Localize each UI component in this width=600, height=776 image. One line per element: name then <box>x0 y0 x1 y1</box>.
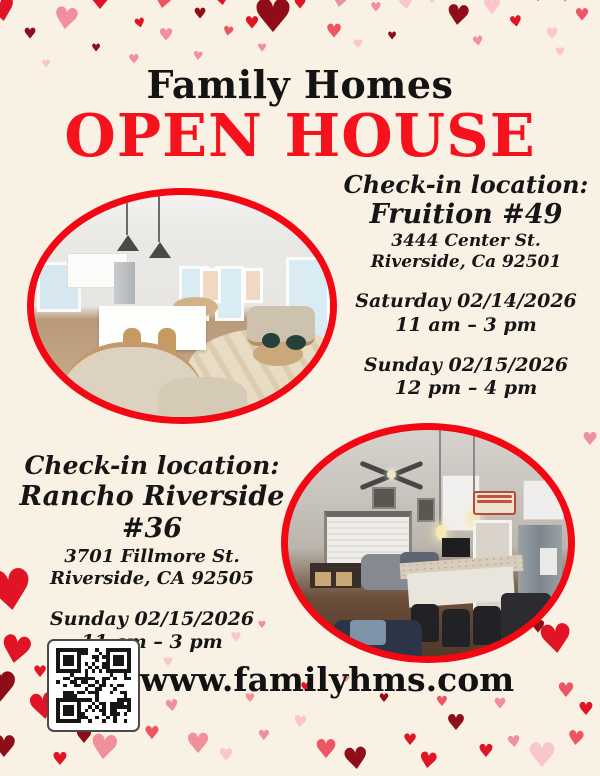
heart-icon: ♥ <box>33 664 47 680</box>
session-time: 12 pm – 4 pm <box>333 377 599 400</box>
checkin-heading: Check-in location: <box>333 171 599 199</box>
wall-art <box>243 268 264 303</box>
heart-icon: ♥ <box>293 0 306 12</box>
heart-icon: ♥ <box>91 43 101 54</box>
heart-icon: ♥ <box>471 35 484 49</box>
heart-icon: ♥ <box>557 680 575 700</box>
heart-icon: ♥ <box>574 8 589 25</box>
pendant-lamp <box>149 242 171 258</box>
pendant-stem <box>126 195 128 235</box>
session-saturday: Saturday 02/14/2026 11 am – 3 pm <box>333 290 599 336</box>
throw-pillow <box>350 620 386 645</box>
heart-icon: ♥ <box>325 23 342 42</box>
wall-photo <box>417 498 435 522</box>
heart-icon: ♥ <box>52 751 68 769</box>
pendant-stem <box>158 195 160 242</box>
heart-icon: ♥ <box>292 713 308 731</box>
heart-icon: ♥ <box>566 727 586 749</box>
heart-icon: ♥ <box>151 0 174 15</box>
location-name: Fruition #49 <box>333 199 599 231</box>
heart-icon: ♥ <box>353 38 364 50</box>
checkin-block-fruition: Check-in location: Fruition #49 3444 Cen… <box>333 171 599 400</box>
fridge-note <box>540 548 557 575</box>
bar-stool <box>473 606 501 644</box>
heart-icon: ♥ <box>578 701 594 719</box>
checkin-heading: Check-in location: <box>6 452 298 481</box>
heart-icon: ♥ <box>193 7 206 22</box>
trash-bins <box>501 593 551 643</box>
session-date: Sunday 02/15/2026 <box>333 354 599 377</box>
decor-vase <box>262 333 280 349</box>
address-line2: Riverside, CA 92505 <box>6 568 298 591</box>
heart-icon: ♥ <box>478 743 494 761</box>
heart-icon: ♥ <box>84 0 116 16</box>
open-house-flyer: ♥♥♥♥♥♥♥♥♥♥♥♥♥♥♥♥♥♥♥♥♥♥♥♥♥♥♥♥♥♥♥♥♥♥♥♥♥♥♥♥… <box>0 0 600 776</box>
address-line1: 3701 Fillmore St. <box>6 546 298 569</box>
basket <box>315 572 332 586</box>
address-line2: Riverside, Ca 92501 <box>333 252 599 273</box>
heart-icon: ♥ <box>213 0 231 10</box>
heart-icon: ♥ <box>397 0 415 14</box>
bar-stool <box>442 609 470 647</box>
heart-icon: ♥ <box>506 733 522 751</box>
photo-lived-in-home <box>281 423 575 663</box>
heart-icon: ♥ <box>0 0 20 29</box>
heart-icon: ♥ <box>482 0 502 19</box>
heart-icon: ♥ <box>446 713 466 735</box>
session-date: Saturday 02/14/2026 <box>333 290 599 313</box>
checkin-block-rancho: Check-in location: Rancho Riverside #36 … <box>6 452 298 654</box>
heart-icon: ♥ <box>133 16 147 31</box>
heart-icon: ♥ <box>164 697 180 715</box>
snack-bar-sign <box>473 491 516 515</box>
session-time: 11 am – 3 pm <box>333 314 599 337</box>
heart-icon: ♥ <box>387 31 397 42</box>
microwave <box>442 538 470 556</box>
address-line1: 3444 Center St. <box>333 231 599 252</box>
wall-photo <box>372 487 396 509</box>
heart-icon: ♥ <box>582 431 598 449</box>
qr-code-grid <box>56 648 131 723</box>
kitchen-cabinets <box>523 480 564 520</box>
website-url: www.familyhms.com <box>140 660 485 699</box>
heart-icon: ♥ <box>0 733 17 763</box>
pendant-stem <box>439 430 441 525</box>
heart-icon: ♥ <box>444 1 472 31</box>
heart-icon: ♥ <box>192 49 204 62</box>
heart-icon: ♥ <box>221 24 235 39</box>
heart-icon: ♥ <box>144 725 160 743</box>
pendant-lamp <box>117 235 139 251</box>
heart-icon: ♥ <box>418 0 447 8</box>
photo-staged-home <box>27 188 337 424</box>
location-name: Rancho Riverside #36 <box>6 481 298 546</box>
heart-icon: ♥ <box>51 3 82 36</box>
refrigerator <box>114 262 135 304</box>
heart-icon: ♥ <box>87 729 121 766</box>
heart-icon: ♥ <box>555 46 566 58</box>
heart-icon: ♥ <box>185 730 210 758</box>
session-sunday: Sunday 02/15/2026 12 pm – 4 pm <box>333 354 599 400</box>
heart-icon: ♥ <box>403 732 417 748</box>
heart-icon: ♥ <box>258 729 271 743</box>
heart-icon: ♥ <box>314 737 337 763</box>
heart-icon: ♥ <box>527 739 557 773</box>
heart-icon: ♥ <box>508 13 524 30</box>
sofa-cushion <box>158 377 247 421</box>
heart-icon: ♥ <box>252 0 293 39</box>
heart-icon: ♥ <box>370 2 382 15</box>
heart-icon: ♥ <box>341 744 371 776</box>
fan-light <box>387 470 396 479</box>
heart-icon: ♥ <box>330 0 351 11</box>
heart-icon: ♥ <box>0 667 19 709</box>
heart-icon: ♥ <box>545 27 558 42</box>
heart-icon: ♥ <box>257 43 267 54</box>
heart-icon: ♥ <box>218 748 233 765</box>
heart-icon: ♥ <box>522 0 554 8</box>
basket <box>336 572 353 586</box>
heart-icon: ♥ <box>304 0 328 3</box>
qr-code <box>47 639 140 732</box>
session-date: Sunday 02/15/2026 <box>6 608 298 631</box>
heart-icon: ♥ <box>417 750 440 775</box>
heart-icon: ♥ <box>158 28 173 45</box>
page-title: OPEN HOUSE <box>0 101 600 170</box>
heart-icon: ♥ <box>23 27 36 42</box>
